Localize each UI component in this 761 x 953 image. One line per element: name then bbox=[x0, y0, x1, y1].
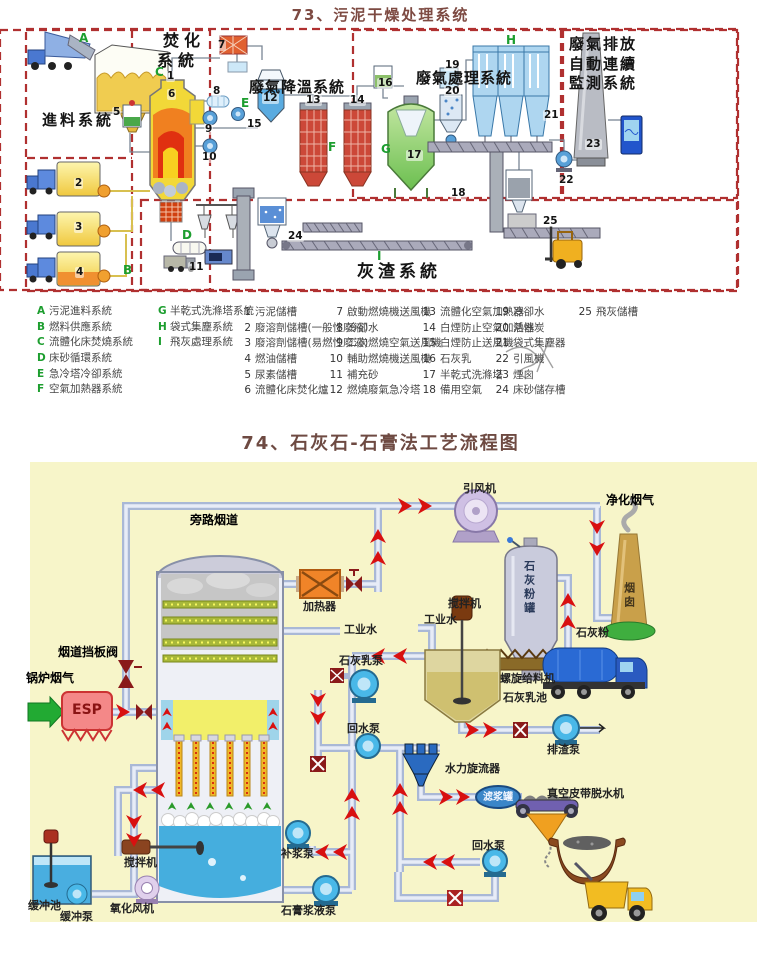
legend-num: 15 bbox=[421, 337, 436, 349]
d1-bagfilter bbox=[473, 46, 549, 152]
label-return-pump-upper: 回水泵 bbox=[347, 723, 380, 736]
eq-num-24: 24 bbox=[287, 231, 304, 242]
legend-text: 飛灰儲槽 bbox=[596, 306, 638, 318]
d1-idfan-22 bbox=[556, 151, 572, 172]
region-label-monitor-1: 廢氣排放 bbox=[569, 37, 637, 52]
letter-G: G bbox=[381, 143, 391, 155]
d1-conveyors bbox=[282, 142, 600, 250]
legend-row: 19冷卻水 bbox=[494, 304, 566, 320]
legend-col-items-4: 19冷卻水 20活性炭 21袋式集塵器 22引風機 23煙囪 24床砂儲存槽 bbox=[494, 304, 566, 398]
legend-num: 19 bbox=[494, 306, 509, 318]
legend-text: 燃油儲槽 bbox=[255, 353, 297, 365]
d1-airheater-13 bbox=[300, 103, 327, 186]
legend-row: 20活性炭 bbox=[494, 320, 566, 336]
legend-num: 5 bbox=[236, 369, 251, 381]
label-makeup-pump: 补浆泵 bbox=[281, 848, 314, 861]
legend-num: 2 bbox=[236, 322, 251, 334]
legend-key: F bbox=[37, 383, 49, 395]
d1-carbon-20 bbox=[440, 95, 462, 145]
label-mixer-limepool: 搅拌机 bbox=[448, 598, 481, 611]
eq-num-3: 3 bbox=[74, 222, 83, 233]
legend-text: 補充砂 bbox=[347, 369, 379, 381]
legend-text: 輔助燃燒機送風機 bbox=[347, 353, 431, 365]
letter-B: B bbox=[123, 264, 132, 276]
d2-oxidation-fan bbox=[135, 876, 159, 904]
legend-num: 11 bbox=[328, 369, 343, 381]
legend-key: A bbox=[37, 305, 49, 317]
label-gypsum-pump: 石膏浆液泵 bbox=[281, 905, 336, 918]
d2-absorber-tower bbox=[157, 556, 283, 902]
letter-H: H bbox=[506, 34, 516, 46]
d2-id-fan bbox=[453, 490, 499, 542]
label-lime-powder: 石灰粉 bbox=[576, 627, 609, 640]
legend-text: 煙囪 bbox=[513, 369, 534, 381]
letter-F: F bbox=[328, 141, 336, 153]
label-mixer-absorber: 搅拌机 bbox=[124, 857, 157, 870]
legend-row: 25飛灰儲槽 bbox=[577, 304, 638, 320]
eq-num-7: 7 bbox=[217, 40, 226, 51]
legend-row: E急冷塔冷卻系統 bbox=[37, 366, 133, 382]
legend-key: H bbox=[158, 321, 170, 333]
d2-buffer-pump bbox=[67, 884, 87, 904]
d2-slurry-valve bbox=[310, 756, 326, 772]
legend-num: 14 bbox=[421, 322, 436, 334]
legend-text: 引風機 bbox=[513, 353, 545, 365]
legend-key: E bbox=[37, 368, 49, 380]
legend-num: 24 bbox=[494, 384, 509, 396]
legend-text: 燃燒廢氣急冷塔 bbox=[347, 384, 421, 396]
legend-num: 10 bbox=[328, 353, 343, 365]
legend-key: G bbox=[158, 305, 170, 317]
legend-num: 18 bbox=[421, 384, 436, 396]
region-label-feed: 進料系統 bbox=[42, 113, 114, 128]
legend-num: 16 bbox=[421, 353, 436, 365]
label-clean-gas: 净化烟气 bbox=[606, 494, 654, 508]
eq-num-9: 9 bbox=[204, 124, 213, 135]
eq-num-19: 19 bbox=[444, 60, 461, 71]
d2-return-pump-lower bbox=[483, 849, 507, 877]
d1-cooler-8 bbox=[207, 96, 229, 107]
legend-text: 燃料供應系統 bbox=[49, 321, 112, 333]
eq-num-15: 15 bbox=[246, 119, 263, 130]
label-buffer-pool: 缓冲池 bbox=[28, 900, 61, 913]
legend-text: 活性炭 bbox=[513, 322, 545, 334]
legend-num: 4 bbox=[236, 353, 251, 365]
region-label-treat: 廢氣處理系統 bbox=[416, 71, 512, 86]
legend-num: 23 bbox=[494, 369, 509, 381]
legend-key: C bbox=[37, 336, 49, 348]
d1-elevator-right bbox=[490, 152, 503, 232]
label-boiler-gas: 锅炉烟气 bbox=[26, 672, 74, 686]
label-esp: ESP bbox=[62, 702, 112, 718]
label-heater: 加热器 bbox=[303, 601, 336, 614]
legend-col-items-5: 25飛灰儲槽 bbox=[577, 304, 638, 320]
legend-row: D床砂循環系統 bbox=[37, 350, 133, 366]
label-filter-tank: 滤浆罐 bbox=[478, 792, 518, 804]
eq-num-6: 6 bbox=[167, 89, 176, 100]
label-chimney: 烟囱 bbox=[622, 582, 635, 610]
legend-col-systems-1: A污泥進料系統 B燃料供應系統 C流體化床焚燒系統 D床砂循環系統 E急冷塔冷卻… bbox=[37, 303, 133, 397]
legend-text: 袋式集塵器 bbox=[513, 337, 566, 349]
d1-control-box bbox=[205, 250, 232, 264]
legend-num: 7 bbox=[328, 306, 343, 318]
legend-num: 13 bbox=[421, 306, 436, 318]
legend-text: 流體化床焚燒系統 bbox=[49, 336, 133, 348]
d1-airheater-14 bbox=[344, 103, 371, 186]
letter-E: E bbox=[241, 97, 249, 109]
legend-row: B燃料供應系統 bbox=[37, 319, 133, 335]
eq-num-12: 12 bbox=[262, 93, 279, 104]
legend-key: D bbox=[37, 352, 49, 364]
legend-num: 8 bbox=[328, 322, 343, 334]
label-buffer-pump: 缓冲泵 bbox=[60, 911, 93, 924]
label-vacuum-belt: 真空皮带脱水机 bbox=[547, 788, 624, 801]
legend-text: 石灰乳 bbox=[440, 353, 472, 365]
d1-cems-monitor bbox=[621, 116, 642, 154]
legend-text: 尿素儲槽 bbox=[255, 369, 297, 381]
eq-num-10: 10 bbox=[201, 152, 218, 163]
legend-text: 空氣加熱器系統 bbox=[49, 383, 123, 395]
eq-num-11: 11 bbox=[188, 262, 205, 273]
diagram2 bbox=[28, 462, 757, 922]
label-damper-valve: 烟道挡板阀 bbox=[58, 646, 118, 660]
legend-text: 床砂循環系統 bbox=[49, 352, 112, 364]
label-industrial-water-2: 工业水 bbox=[424, 614, 457, 627]
label-bypass-flue: 旁路烟道 bbox=[190, 514, 238, 528]
label-industrial-water-1: 工业水 bbox=[344, 624, 377, 637]
legend-num: 9 bbox=[328, 337, 343, 349]
title-73: 73、污泥干燥处理系统 bbox=[0, 4, 761, 25]
legend-text: 備用空氣 bbox=[440, 384, 482, 396]
d1-scrubber-17 bbox=[388, 96, 434, 198]
eq-num-23: 23 bbox=[585, 139, 602, 150]
legend-num: 25 bbox=[577, 306, 592, 318]
legend-text: 冷卻水 bbox=[513, 306, 545, 318]
eq-num-14: 14 bbox=[349, 95, 366, 106]
legend-num: 21 bbox=[494, 337, 509, 349]
legend-text: 急冷塔冷卻系統 bbox=[49, 368, 123, 380]
eq-num-5: 5 bbox=[112, 107, 121, 118]
legend-num: 1 bbox=[236, 306, 251, 318]
letter-A: A bbox=[79, 32, 88, 44]
legend-row: 22引風機 bbox=[494, 351, 566, 367]
legend-row: 24床砂儲存槽 bbox=[494, 382, 566, 398]
legend-row: 21袋式集塵器 bbox=[494, 335, 566, 351]
eq-num-18: 18 bbox=[450, 188, 467, 199]
eq-num-20: 20 bbox=[444, 86, 461, 97]
d2-gypsum-pump bbox=[313, 876, 339, 906]
label-lime-pool: 石灰乳池 bbox=[503, 692, 547, 705]
region-label-incin-1: 焚化 bbox=[163, 33, 205, 49]
label-slag-pump: 排渣泵 bbox=[547, 744, 580, 757]
legend-text: 冷卻水 bbox=[347, 322, 379, 334]
legend-num: 3 bbox=[236, 337, 251, 349]
region-label-monitor-2: 自動連續 bbox=[569, 57, 637, 72]
label-id-fan: 引风机 bbox=[463, 483, 496, 496]
label-lime-silo: 石灰粉罐 bbox=[522, 560, 535, 616]
letter-I: I bbox=[377, 250, 381, 262]
eq-num-16: 16 bbox=[377, 78, 394, 89]
d2-bottom-valve bbox=[447, 890, 463, 906]
legend-text: 飛灰處理系統 bbox=[170, 336, 233, 348]
eq-num-1: 1 bbox=[166, 71, 175, 82]
legend-num: 22 bbox=[494, 353, 509, 365]
label-screw-feeder: 螺旋给料机 bbox=[500, 673, 555, 686]
d1-sand-cooler bbox=[173, 242, 206, 254]
legend-row: C流體化床焚燒系統 bbox=[37, 334, 133, 350]
eq-num-21: 21 bbox=[543, 110, 560, 121]
letter-D: D bbox=[182, 229, 192, 241]
eq-num-22: 22 bbox=[558, 175, 575, 186]
d1-flyash-hopper-25 bbox=[506, 170, 536, 228]
legend-row: 23煙囪 bbox=[494, 367, 566, 383]
d1-small-tank bbox=[190, 100, 204, 124]
legend-text: 流體化床焚化爐 bbox=[255, 384, 329, 396]
letter-C: C bbox=[155, 66, 164, 78]
legend-text: 袋式集塵系統 bbox=[170, 321, 233, 333]
d1-fuel-trucks bbox=[27, 170, 55, 283]
region-label-monitor-3: 監測系統 bbox=[569, 76, 637, 91]
d1-elevator bbox=[233, 188, 254, 280]
eq-num-2: 2 bbox=[74, 178, 83, 189]
legend-num: 12 bbox=[328, 384, 343, 396]
legend-key: B bbox=[37, 321, 49, 333]
eq-num-17: 17 bbox=[406, 150, 423, 161]
legend-row: A污泥進料系統 bbox=[37, 303, 133, 319]
legend-text: 污泥儲槽 bbox=[255, 306, 297, 318]
label-oxidation-fan: 氧化风机 bbox=[110, 903, 154, 916]
page: 73、污泥干燥处理系统 74、石灰石-石膏法工艺流程图 進料系統 焚化 系統 廢… bbox=[0, 0, 761, 953]
legend-num: 6 bbox=[236, 384, 251, 396]
d2-heater bbox=[296, 570, 344, 598]
label-hydrocyclone: 水力旋流器 bbox=[445, 763, 500, 776]
legend-text: 污泥進料系統 bbox=[49, 305, 112, 317]
eq-num-8: 8 bbox=[212, 86, 221, 97]
d2-makeup-pump bbox=[286, 821, 310, 849]
legend-text: 啟動燃燒機送風機 bbox=[347, 306, 431, 318]
region-label-ash: 灰渣系統 bbox=[357, 264, 441, 281]
eq-num-25: 25 bbox=[542, 216, 559, 227]
label-lime-pump: 石灰乳泵 bbox=[339, 655, 383, 668]
d2-return-pump-upper bbox=[356, 734, 380, 758]
legend-num: 20 bbox=[494, 322, 509, 334]
title-74: 74、石灰石-石膏法工艺流程图 bbox=[0, 429, 761, 455]
legend-num: 17 bbox=[421, 369, 436, 381]
eq-num-4: 4 bbox=[75, 267, 84, 278]
legend-row: F空氣加熱器系統 bbox=[37, 381, 133, 397]
legend-key: I bbox=[158, 336, 170, 348]
eq-num-13: 13 bbox=[305, 95, 322, 106]
label-return-pump-lower: 回水泵 bbox=[472, 840, 505, 853]
legend-text: 床砂儲存槽 bbox=[513, 384, 566, 396]
